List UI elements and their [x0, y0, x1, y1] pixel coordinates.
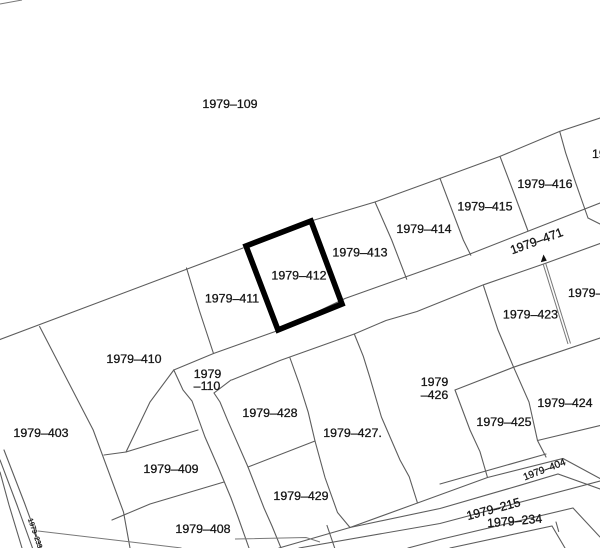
svg-text:1979–416: 1979–416 — [517, 177, 572, 191]
svg-text:1979–409: 1979–409 — [143, 462, 198, 476]
svg-text:1979–403: 1979–403 — [13, 426, 68, 440]
svg-text:1979–428: 1979–428 — [242, 406, 297, 420]
svg-text:1979–410: 1979–410 — [106, 352, 161, 366]
svg-text:1979–4: 1979–4 — [568, 286, 600, 300]
svg-text:1979–423: 1979–423 — [503, 308, 558, 322]
svg-text:1979–415: 1979–415 — [457, 200, 512, 214]
svg-text:–110: –110 — [194, 379, 221, 393]
svg-text:1979–429: 1979–429 — [273, 489, 328, 503]
svg-text:1979: 1979 — [421, 375, 449, 389]
svg-text:1979–109: 1979–109 — [202, 97, 257, 111]
svg-text:19: 19 — [592, 147, 600, 161]
svg-text:1979–424: 1979–424 — [537, 396, 592, 410]
svg-text:1979–414: 1979–414 — [396, 222, 451, 236]
svg-text:1979–412: 1979–412 — [271, 269, 326, 283]
svg-text:1979–411: 1979–411 — [205, 292, 259, 306]
svg-text:1979–408: 1979–408 — [175, 522, 230, 536]
svg-text:1979–427.: 1979–427. — [323, 426, 382, 440]
svg-text:–426: –426 — [421, 388, 449, 402]
svg-text:1979–413: 1979–413 — [332, 246, 387, 260]
svg-text:1979–425: 1979–425 — [476, 415, 531, 429]
